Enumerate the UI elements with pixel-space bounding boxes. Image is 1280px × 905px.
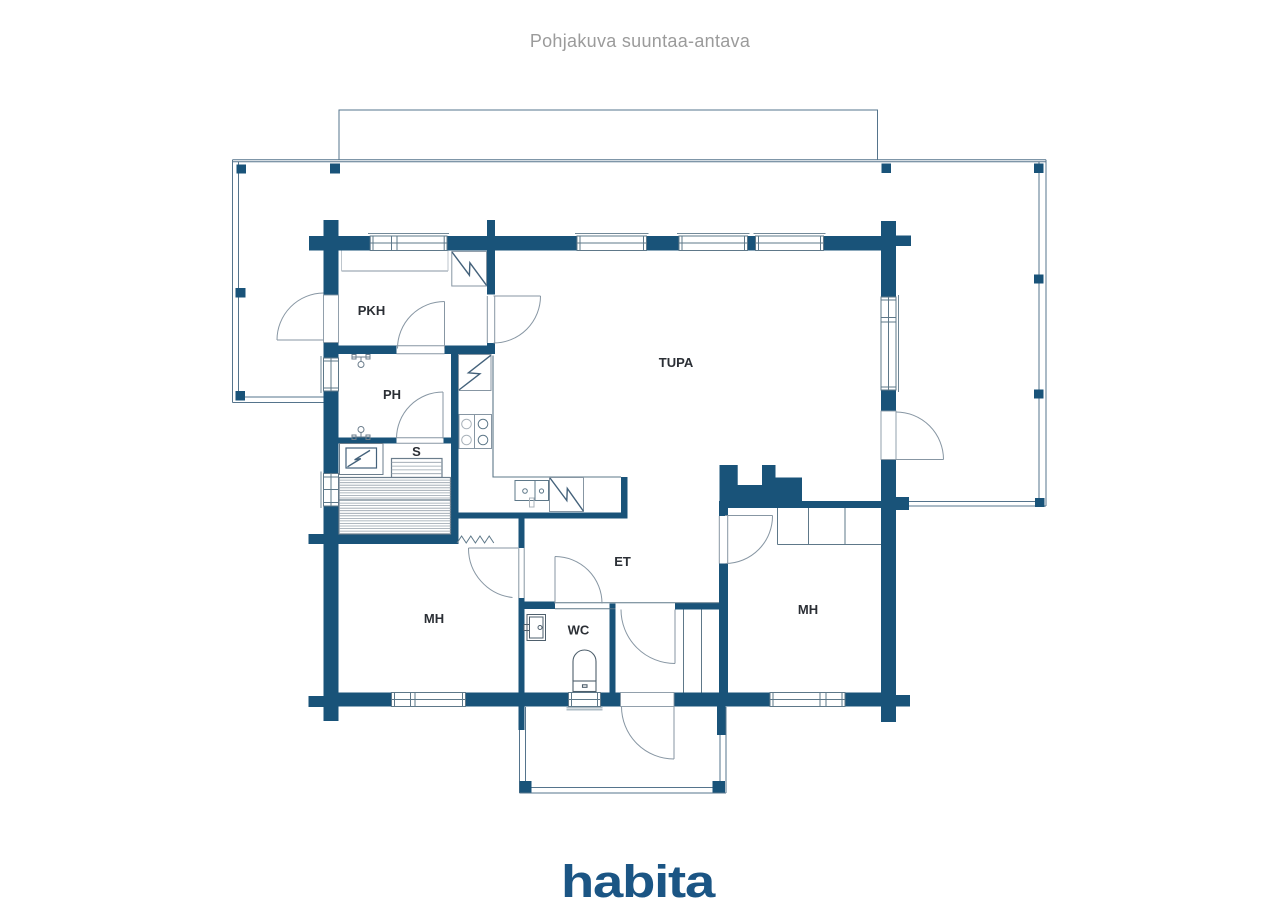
svg-text:PKH: PKH bbox=[358, 303, 385, 318]
svg-text:MH: MH bbox=[798, 602, 818, 617]
svg-text:WC: WC bbox=[568, 623, 590, 638]
svg-text:TUPA: TUPA bbox=[659, 355, 694, 370]
svg-text:ET: ET bbox=[614, 554, 631, 569]
svg-text:Pohjakuva suuntaa-antava: Pohjakuva suuntaa-antava bbox=[530, 31, 751, 51]
svg-text:PH: PH bbox=[383, 387, 401, 402]
svg-text:MH: MH bbox=[424, 611, 444, 626]
svg-text:habita: habita bbox=[561, 856, 717, 905]
svg-text:S: S bbox=[412, 444, 421, 459]
